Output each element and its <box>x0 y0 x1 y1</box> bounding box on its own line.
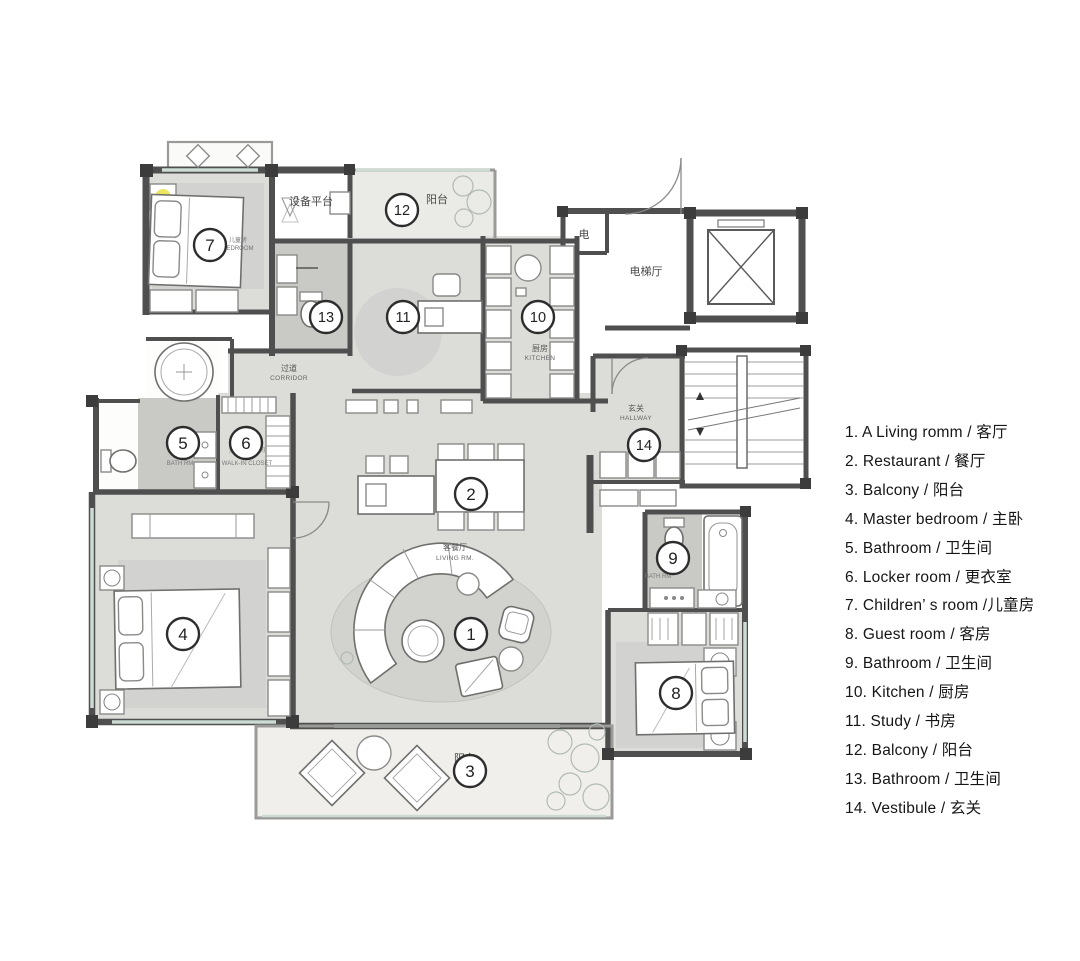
legend-item: 9. Bathroom / 卫生间 <box>845 650 1034 679</box>
svg-text:6: 6 <box>241 434 250 453</box>
svg-text:11: 11 <box>395 310 410 326</box>
legend-item: 12. Balcony / 阳台 <box>845 737 1034 766</box>
label-bath5: BATH RM <box>167 461 194 467</box>
svg-text:8: 8 <box>671 684 680 703</box>
room-marker-14: 14 <box>628 429 660 461</box>
svg-text:10: 10 <box>530 310 546 326</box>
room-marker-12: 12 <box>386 194 418 226</box>
svg-text:12: 12 <box>394 203 410 219</box>
label-equipment-platform: 设备平台 <box>289 194 333 208</box>
label-hallway-en: HALLWAY <box>620 415 652 422</box>
legend-item: 14. Vestibule / 玄关 <box>845 795 1034 824</box>
legend-item: 6. Locker room / 更衣室 <box>845 564 1034 593</box>
room-marker-4: 4 <box>167 618 199 650</box>
legend-item: 1. A Living romm / 客厅 <box>845 419 1034 448</box>
legend-item: 7. Children’ s room /儿童房 <box>845 592 1034 621</box>
label-kitchen-zh: 厨房 <box>532 343 548 353</box>
room-marker-13: 13 <box>310 301 342 333</box>
room-marker-7: 7 <box>194 229 226 261</box>
elevator-shaft <box>708 220 774 304</box>
svg-text:7: 7 <box>205 236 214 255</box>
room-marker-6: 6 <box>230 427 262 459</box>
label-bath9: BATH RM <box>645 574 672 580</box>
room-marker-10: 10 <box>522 301 554 333</box>
legend-item: 10. Kitchen / 厨房 <box>845 679 1034 708</box>
svg-text:3: 3 <box>465 762 474 781</box>
label-bedroom7-zh: 儿童房 <box>229 236 247 244</box>
floor-plan: 设备平台 阳台 电 电梯厅 厨房 KITCHEN 过道 CORRIDOR 玄关 … <box>80 130 820 830</box>
label-living-zh: 客餐厅 <box>443 542 467 552</box>
svg-text:9: 9 <box>668 549 677 568</box>
legend-item: 4. Master bedroom / 主卧 <box>845 506 1034 535</box>
svg-text:13: 13 <box>318 310 334 326</box>
legend-item: 2. Restaurant / 餐厅 <box>845 448 1034 477</box>
room-marker-9: 9 <box>657 542 689 574</box>
label-bedroom7-en: BEDROOM <box>222 246 253 252</box>
legend-item: 13. Bathroom / 卫生间 <box>845 766 1034 795</box>
label-electrical: 电 <box>579 228 590 241</box>
room-marker-8: 8 <box>660 677 692 709</box>
svg-text:2: 2 <box>466 485 475 504</box>
label-corridor-zh: 过道 <box>281 363 297 373</box>
label-balcony-top: 阳台 <box>426 192 448 206</box>
svg-text:5: 5 <box>178 434 187 453</box>
corridor-cabinets <box>346 400 472 413</box>
label-elevator-hall: 电梯厅 <box>630 265 663 278</box>
label-kitchen-en: KITCHEN <box>525 355 556 362</box>
room-marker-11: 11 <box>387 301 419 333</box>
label-closet-en: WALK-IN CLOSET <box>222 461 273 467</box>
label-hallway-zh: 玄关 <box>628 403 644 413</box>
room-marker-3: 3 <box>454 755 486 787</box>
room-marker-5: 5 <box>167 427 199 459</box>
legend-item: 3. Balcony / 阳台 <box>845 477 1034 506</box>
legend-item: 8. Guest room / 客房 <box>845 621 1034 650</box>
room-marker-2: 2 <box>455 478 487 510</box>
legend-item: 11. Study / 书房 <box>845 708 1034 737</box>
room-marker-1: 1 <box>455 618 487 650</box>
legend: 1. A Living romm / 客厅 2. Restaurant / 餐厅… <box>845 419 1034 824</box>
svg-text:1: 1 <box>466 625 475 644</box>
svg-text:4: 4 <box>178 625 187 644</box>
svg-text:14: 14 <box>636 438 652 454</box>
legend-item: 5. Bathroom / 卫生间 <box>845 535 1034 564</box>
floor-plan-svg: 设备平台 阳台 电 电梯厅 厨房 KITCHEN 过道 CORRIDOR 玄关 … <box>80 130 820 830</box>
label-living-en: LIVING RM. <box>436 555 474 562</box>
label-corridor-en: CORRIDOR <box>270 375 308 382</box>
